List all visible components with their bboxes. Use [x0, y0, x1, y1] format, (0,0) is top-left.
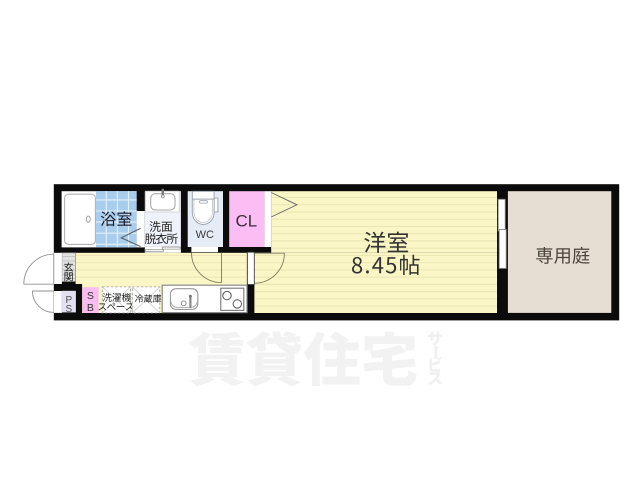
svg-text:WC: WC: [196, 229, 214, 241]
svg-text:S: S: [65, 304, 72, 315]
svg-text:B: B: [87, 302, 94, 314]
svg-text:S: S: [87, 290, 94, 302]
svg-text:CL: CL: [236, 211, 258, 230]
